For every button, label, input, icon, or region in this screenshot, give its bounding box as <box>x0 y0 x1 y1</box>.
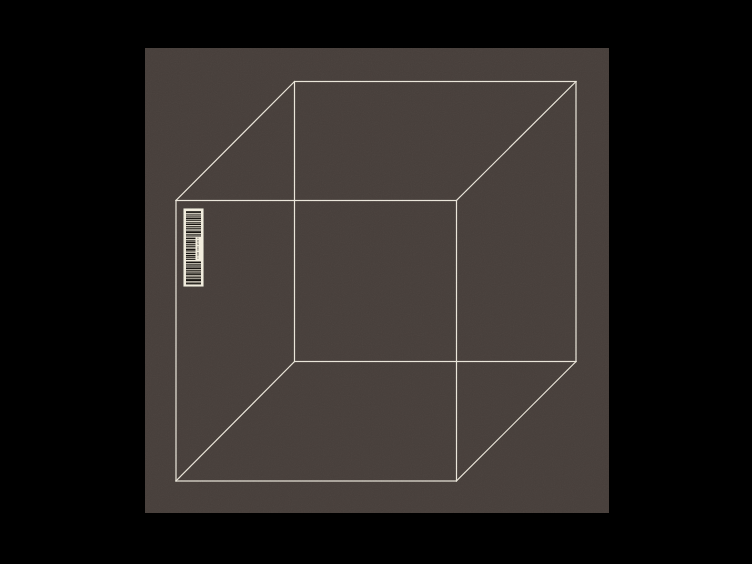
barcode-digits: 0 1017 5000 1010 0 <box>196 238 200 259</box>
cube-edge-bottom-left <box>176 362 295 482</box>
barcode-sticker: 0 1017 5000 1010 0 <box>183 208 204 287</box>
wireframe-cube <box>145 48 609 513</box>
stage: 0 1017 5000 1010 0 <box>0 0 752 564</box>
cube-edge-top-right <box>457 82 577 201</box>
background: { "scene": { "description": "Minimal cov… <box>0 0 752 564</box>
cube-edge-bottom-right <box>457 362 577 482</box>
cover-panel: 0 1017 5000 1010 0 <box>145 48 609 513</box>
cube-edge-top-left <box>176 82 295 201</box>
